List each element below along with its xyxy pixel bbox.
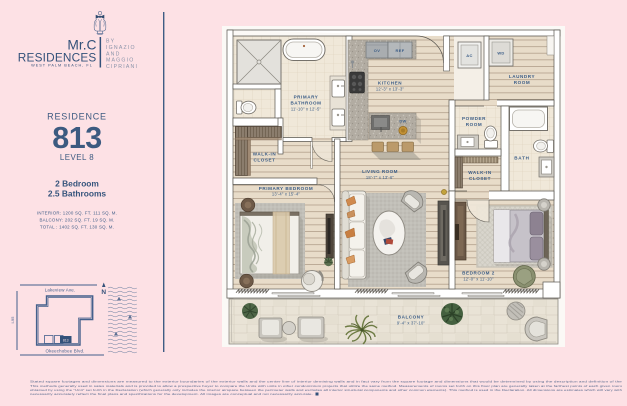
svg-text:LEVEL 8: LEVEL 8	[60, 153, 94, 162]
svg-text:RESIDENCES: RESIDENCES	[18, 50, 97, 64]
svg-text:2 Bedroom: 2 Bedroom	[55, 179, 99, 189]
svg-text:11'-10" x 12'-5": 11'-10" x 12'-5"	[291, 107, 322, 112]
svg-text:necessarily accurately reflect: necessarily accurately reflect the final…	[30, 392, 313, 396]
svg-text:BATH: BATH	[514, 156, 530, 161]
svg-text:LIVING ROOM: LIVING ROOM	[362, 169, 398, 174]
svg-text:BATHROOM: BATHROOM	[290, 101, 321, 106]
svg-text:I-95: I-95	[10, 316, 15, 324]
svg-text:12'-0" x 11'-10": 12'-0" x 11'-10"	[463, 277, 494, 282]
svg-text:TOTAL : 1402 SQ. FT. 130 SQ. M: TOTAL : 1402 SQ. FT. 130 SQ. M.	[40, 225, 114, 230]
svg-text:BALCONY: BALCONY	[398, 315, 425, 320]
svg-text:18'-7" x 13'-6": 18'-7" x 13'-6"	[366, 175, 395, 180]
svg-text:AND: AND	[106, 51, 121, 57]
svg-text:Okeechobee Blvd.: Okeechobee Blvd.	[45, 349, 84, 354]
svg-text:N: N	[101, 289, 106, 296]
svg-text:WALK-IN: WALK-IN	[468, 170, 492, 175]
svg-text:BEDROOM 2: BEDROOM 2	[462, 271, 495, 276]
svg-text:13'-4" x 15'-4": 13'-4" x 15'-4"	[272, 192, 301, 197]
svg-text:PRIMARY BEDROOM: PRIMARY BEDROOM	[259, 186, 313, 191]
svg-text:REF: REF	[396, 48, 405, 53]
svg-text:BALCONY: 202 SQ. FT. 19 SQ. M.: BALCONY: 202 SQ. FT. 19 SQ. M.	[39, 218, 114, 223]
svg-text:MAGGIO: MAGGIO	[106, 58, 135, 64]
svg-text:WD: WD	[497, 51, 504, 56]
svg-text:LAUNDRY: LAUNDRY	[509, 74, 535, 79]
svg-text:INTERIOR: 1200 SQ. FT. 111 SQ.: INTERIOR: 1200 SQ. FT. 111 SQ. M.	[37, 211, 117, 216]
svg-text:BY: BY	[106, 39, 115, 45]
svg-text:Lakeview Ave.: Lakeview Ave.	[45, 288, 76, 293]
svg-text:DW: DW	[399, 119, 406, 124]
svg-text:813: 813	[52, 121, 101, 155]
svg-text:POWDER: POWDER	[462, 116, 486, 121]
svg-text:ROOM: ROOM	[466, 122, 483, 127]
svg-text:PRIMARY: PRIMARY	[294, 95, 319, 100]
svg-text:KITCHEN: KITCHEN	[378, 81, 402, 86]
svg-text:9'-4" x 37'-10": 9'-4" x 37'-10"	[397, 321, 426, 326]
svg-text:CIPRIANI: CIPRIANI	[106, 64, 138, 70]
svg-text:AC: AC	[466, 53, 472, 58]
svg-text:WEST PALM BEACH, FL: WEST PALM BEACH, FL	[31, 64, 93, 68]
svg-text:CLOSET: CLOSET	[254, 158, 276, 163]
svg-text:WALK-IN: WALK-IN	[253, 152, 277, 157]
svg-text:813: 813	[63, 339, 69, 343]
svg-text:2.5 Bathrooms: 2.5 Bathrooms	[48, 189, 107, 199]
svg-text:OV: OV	[374, 48, 380, 53]
svg-text:CLOSET: CLOSET	[469, 176, 491, 181]
svg-text:ROOM: ROOM	[514, 80, 531, 85]
svg-text:IGNAZIO: IGNAZIO	[106, 45, 136, 51]
svg-text:12'-3" x 13'-3": 12'-3" x 13'-3"	[376, 87, 405, 92]
